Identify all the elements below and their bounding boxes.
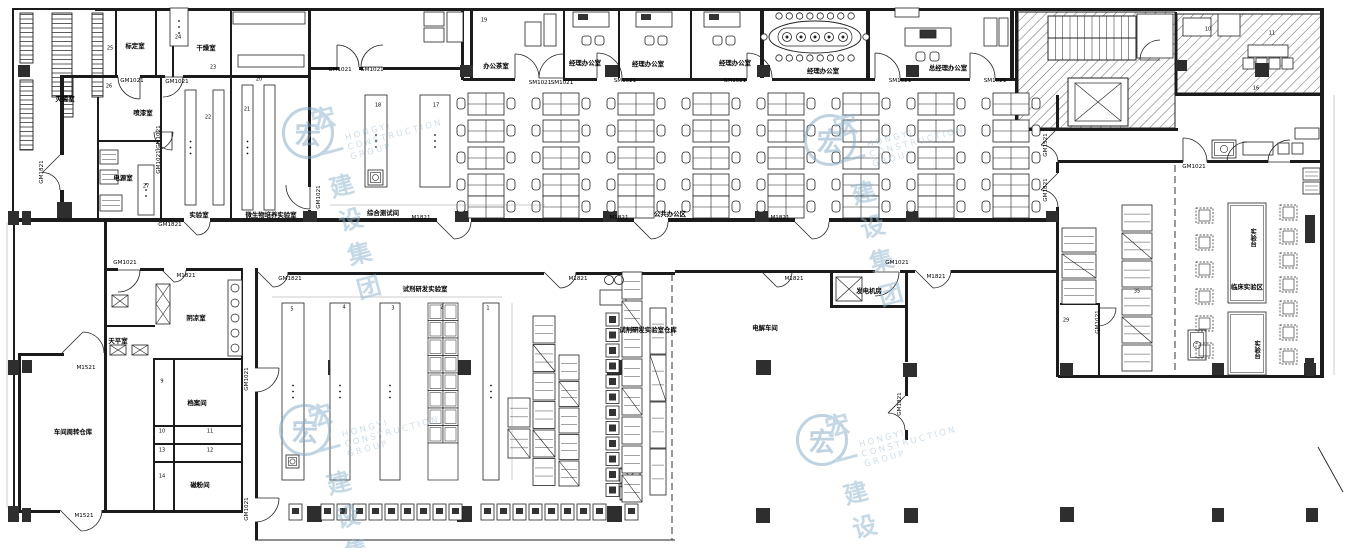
equipment-number: 24 (175, 36, 181, 41)
door-label: GM1021 (157, 150, 163, 173)
door-label: M1821 (770, 216, 789, 222)
room-label: 总经理办公室 (929, 65, 967, 71)
door-label: GM1021 (245, 497, 251, 520)
door-label: M1821 (926, 275, 945, 281)
room-label: 喷漆室 (133, 110, 152, 116)
door-label: GM1021 (113, 261, 136, 267)
equipment-number: 3 (391, 307, 394, 312)
door-label: M1821 (176, 274, 195, 280)
room-label: 天平室 (108, 338, 127, 344)
room-label: 经理办公室 (807, 68, 839, 74)
door-label: GM1521 (1044, 133, 1050, 156)
room-label: 经理办公室 (632, 61, 664, 67)
door-label: GM1021 (157, 125, 163, 148)
room-label: 电源室 (113, 175, 132, 181)
equipment-number: 13 (159, 449, 165, 454)
manager-desks (573, 12, 740, 45)
room-label: 灭菌室 (55, 96, 74, 102)
equipment-number: 12 (207, 449, 213, 454)
room-label: 经理办公室 (719, 60, 751, 66)
room-label: 试剂研发实验室仓库 (619, 327, 677, 333)
room-label: 档案间 (187, 400, 206, 406)
room-label: 电解车间 (752, 325, 778, 331)
door-label: GM1021 (328, 68, 351, 74)
room-label: 办公茶室 (483, 63, 509, 69)
room-label: 发电机房 (856, 288, 882, 294)
door-label: M1821 (568, 277, 587, 283)
equipment-number: 10 (1205, 28, 1211, 33)
equipment-number: 27 (143, 185, 149, 190)
plan-linework (0, 0, 1345, 548)
door-label: GM1021 (317, 185, 323, 208)
equipment-number: 9 (160, 380, 163, 385)
door-label: M1521 (76, 366, 95, 372)
room-label: 实验台 (1249, 229, 1255, 248)
room-label: 综合测试间 (367, 210, 399, 216)
conference-table (761, 13, 869, 61)
equipment-number: 22 (205, 116, 211, 121)
equipment-number: 14 (159, 475, 165, 480)
door-label: SM1021 (889, 79, 912, 85)
equipment-number: 5 (290, 308, 293, 313)
equipment-number: 11 (1269, 32, 1275, 37)
equipment-number: 29 (1063, 319, 1069, 324)
equipment-number: 11 (207, 430, 213, 435)
door-label: M1821 (411, 216, 430, 222)
door-label: GM1821 (898, 392, 904, 415)
door-label: GM1021 (165, 80, 188, 86)
door-label: SM1021 (984, 79, 1007, 85)
door-label: GM1821 (1044, 178, 1050, 201)
equipment-number: 26 (106, 85, 112, 90)
room-label: 车间周转仓库 (54, 429, 92, 435)
equipment-number: 21 (244, 108, 250, 113)
door-label: SM1021 (529, 81, 552, 87)
door-label: SM1021 (724, 79, 747, 85)
room-label: 阴凉室 (186, 315, 205, 321)
door-label: GM1821 (278, 277, 301, 283)
door-label: GM1021 (360, 68, 383, 74)
equipment-number: 10 (159, 430, 165, 435)
staircase (1048, 16, 1136, 60)
room-label: 公共办公区 (654, 211, 686, 217)
room-label: 临床实验区 (1231, 284, 1263, 290)
door-label: M1521 (74, 514, 93, 520)
door-label: GM1021 (120, 79, 143, 85)
floor-plan-canvas: GM1021GM1021GM1021GM1021GM1821GM1021GM10… (0, 0, 1345, 548)
room-label: 经理办公室 (569, 60, 601, 66)
equipment-number: 2 (440, 306, 443, 311)
equipment-number: 4 (342, 306, 345, 311)
door-label: M1821 (784, 277, 803, 283)
equipment-number: 17 (433, 104, 439, 109)
room-label: 试剂研发实验室 (403, 286, 448, 292)
equipment-number: 25 (107, 47, 113, 52)
room-label: 标定室 (125, 43, 144, 49)
door-label: GM1821 (40, 160, 46, 183)
door-label: GM1021 (1182, 165, 1205, 171)
room-label: 磁粉间 (190, 482, 209, 488)
equipment-number: 16 (1253, 87, 1259, 92)
equipment-number: 19 (481, 19, 487, 24)
door-label: GM1021 (1096, 310, 1102, 333)
equipment-number: 1 (486, 307, 489, 312)
elevator-shaft (1068, 78, 1128, 126)
room-label: 实验台 (1253, 341, 1259, 360)
door-label: GM1021 (245, 367, 251, 390)
door-label: GM1021 (885, 261, 908, 267)
equipment-number: 18 (375, 104, 381, 109)
door-label: GM1821 (158, 223, 181, 229)
room-label: 干燥室 (196, 45, 215, 51)
room-label: 实验室 (189, 212, 208, 218)
equipment-number: 23 (210, 66, 216, 71)
door-label: M1821 (609, 216, 628, 222)
door-label: SM1021 (551, 81, 574, 87)
door-label: SM1021 (614, 79, 637, 85)
open-office-desks (457, 93, 1040, 218)
equipment-number: 20 (256, 78, 262, 83)
equipment-number: 35 (1134, 290, 1140, 295)
room-label: 微生物培养实验室 (245, 212, 296, 218)
